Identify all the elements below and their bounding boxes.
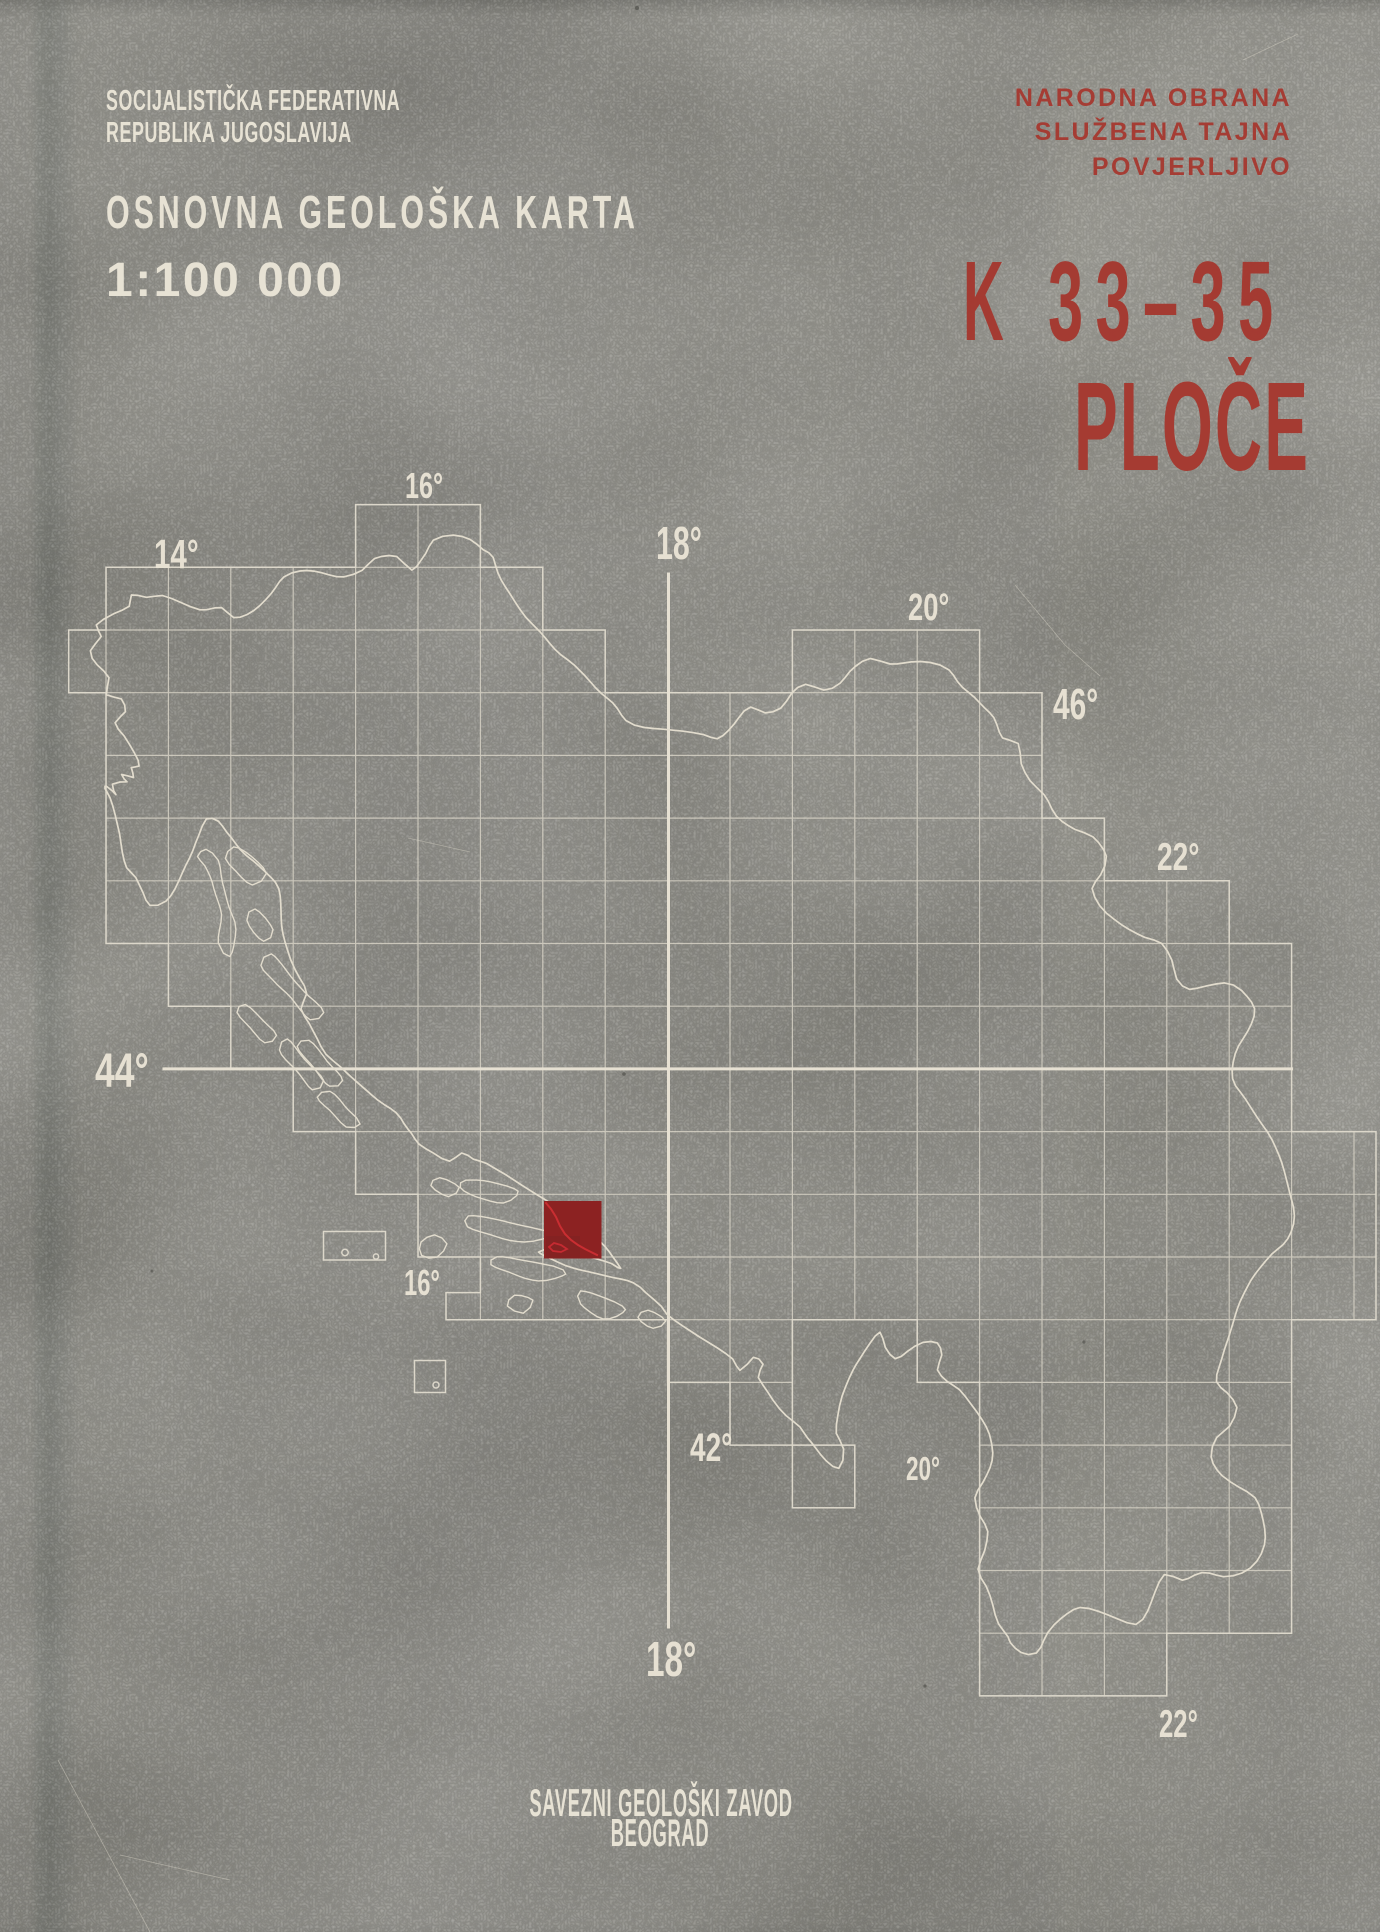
svg-text:14°: 14° [154,531,199,577]
svg-text:18°: 18° [656,519,702,570]
svg-text:SOCIJALISTIČKA FEDERATIVNA: SOCIJALISTIČKA FEDERATIVNA [106,83,400,117]
svg-text:SLUŽBENA TAJNA: SLUŽBENA TAJNA [1035,116,1292,146]
svg-text:22°: 22° [1157,836,1199,880]
svg-text:BEOGRAD: BEOGRAD [611,1811,710,1855]
svg-text:16°: 16° [404,1263,440,1303]
svg-text:PLOČE: PLOČE [1074,357,1310,498]
svg-text:POVJERLJIVO: POVJERLJIVO [1092,153,1292,181]
svg-text:NARODNA OBRANA: NARODNA OBRANA [1015,84,1292,112]
svg-text:20°: 20° [906,1450,940,1487]
svg-text:42°: 42° [690,1426,732,1470]
svg-text:22°: 22° [1159,1703,1198,1747]
svg-text:16°: 16° [405,466,443,507]
svg-text:44°: 44° [95,1044,149,1097]
svg-text:REPUBLIKA JUGOSLAVIJA: REPUBLIKA JUGOSLAVIJA [106,117,352,150]
svg-text:20°: 20° [908,587,949,629]
svg-text:OSNOVNA GEOLOŠKA KARTA: OSNOVNA GEOLOŠKA KARTA [106,186,639,239]
svg-text:33–35: 33–35 [1048,239,1286,365]
svg-text:1:100 000: 1:100 000 [106,254,345,307]
svg-text:18°: 18° [646,1632,696,1687]
svg-text:K: K [963,238,1004,364]
svg-text:46°: 46° [1053,679,1098,728]
